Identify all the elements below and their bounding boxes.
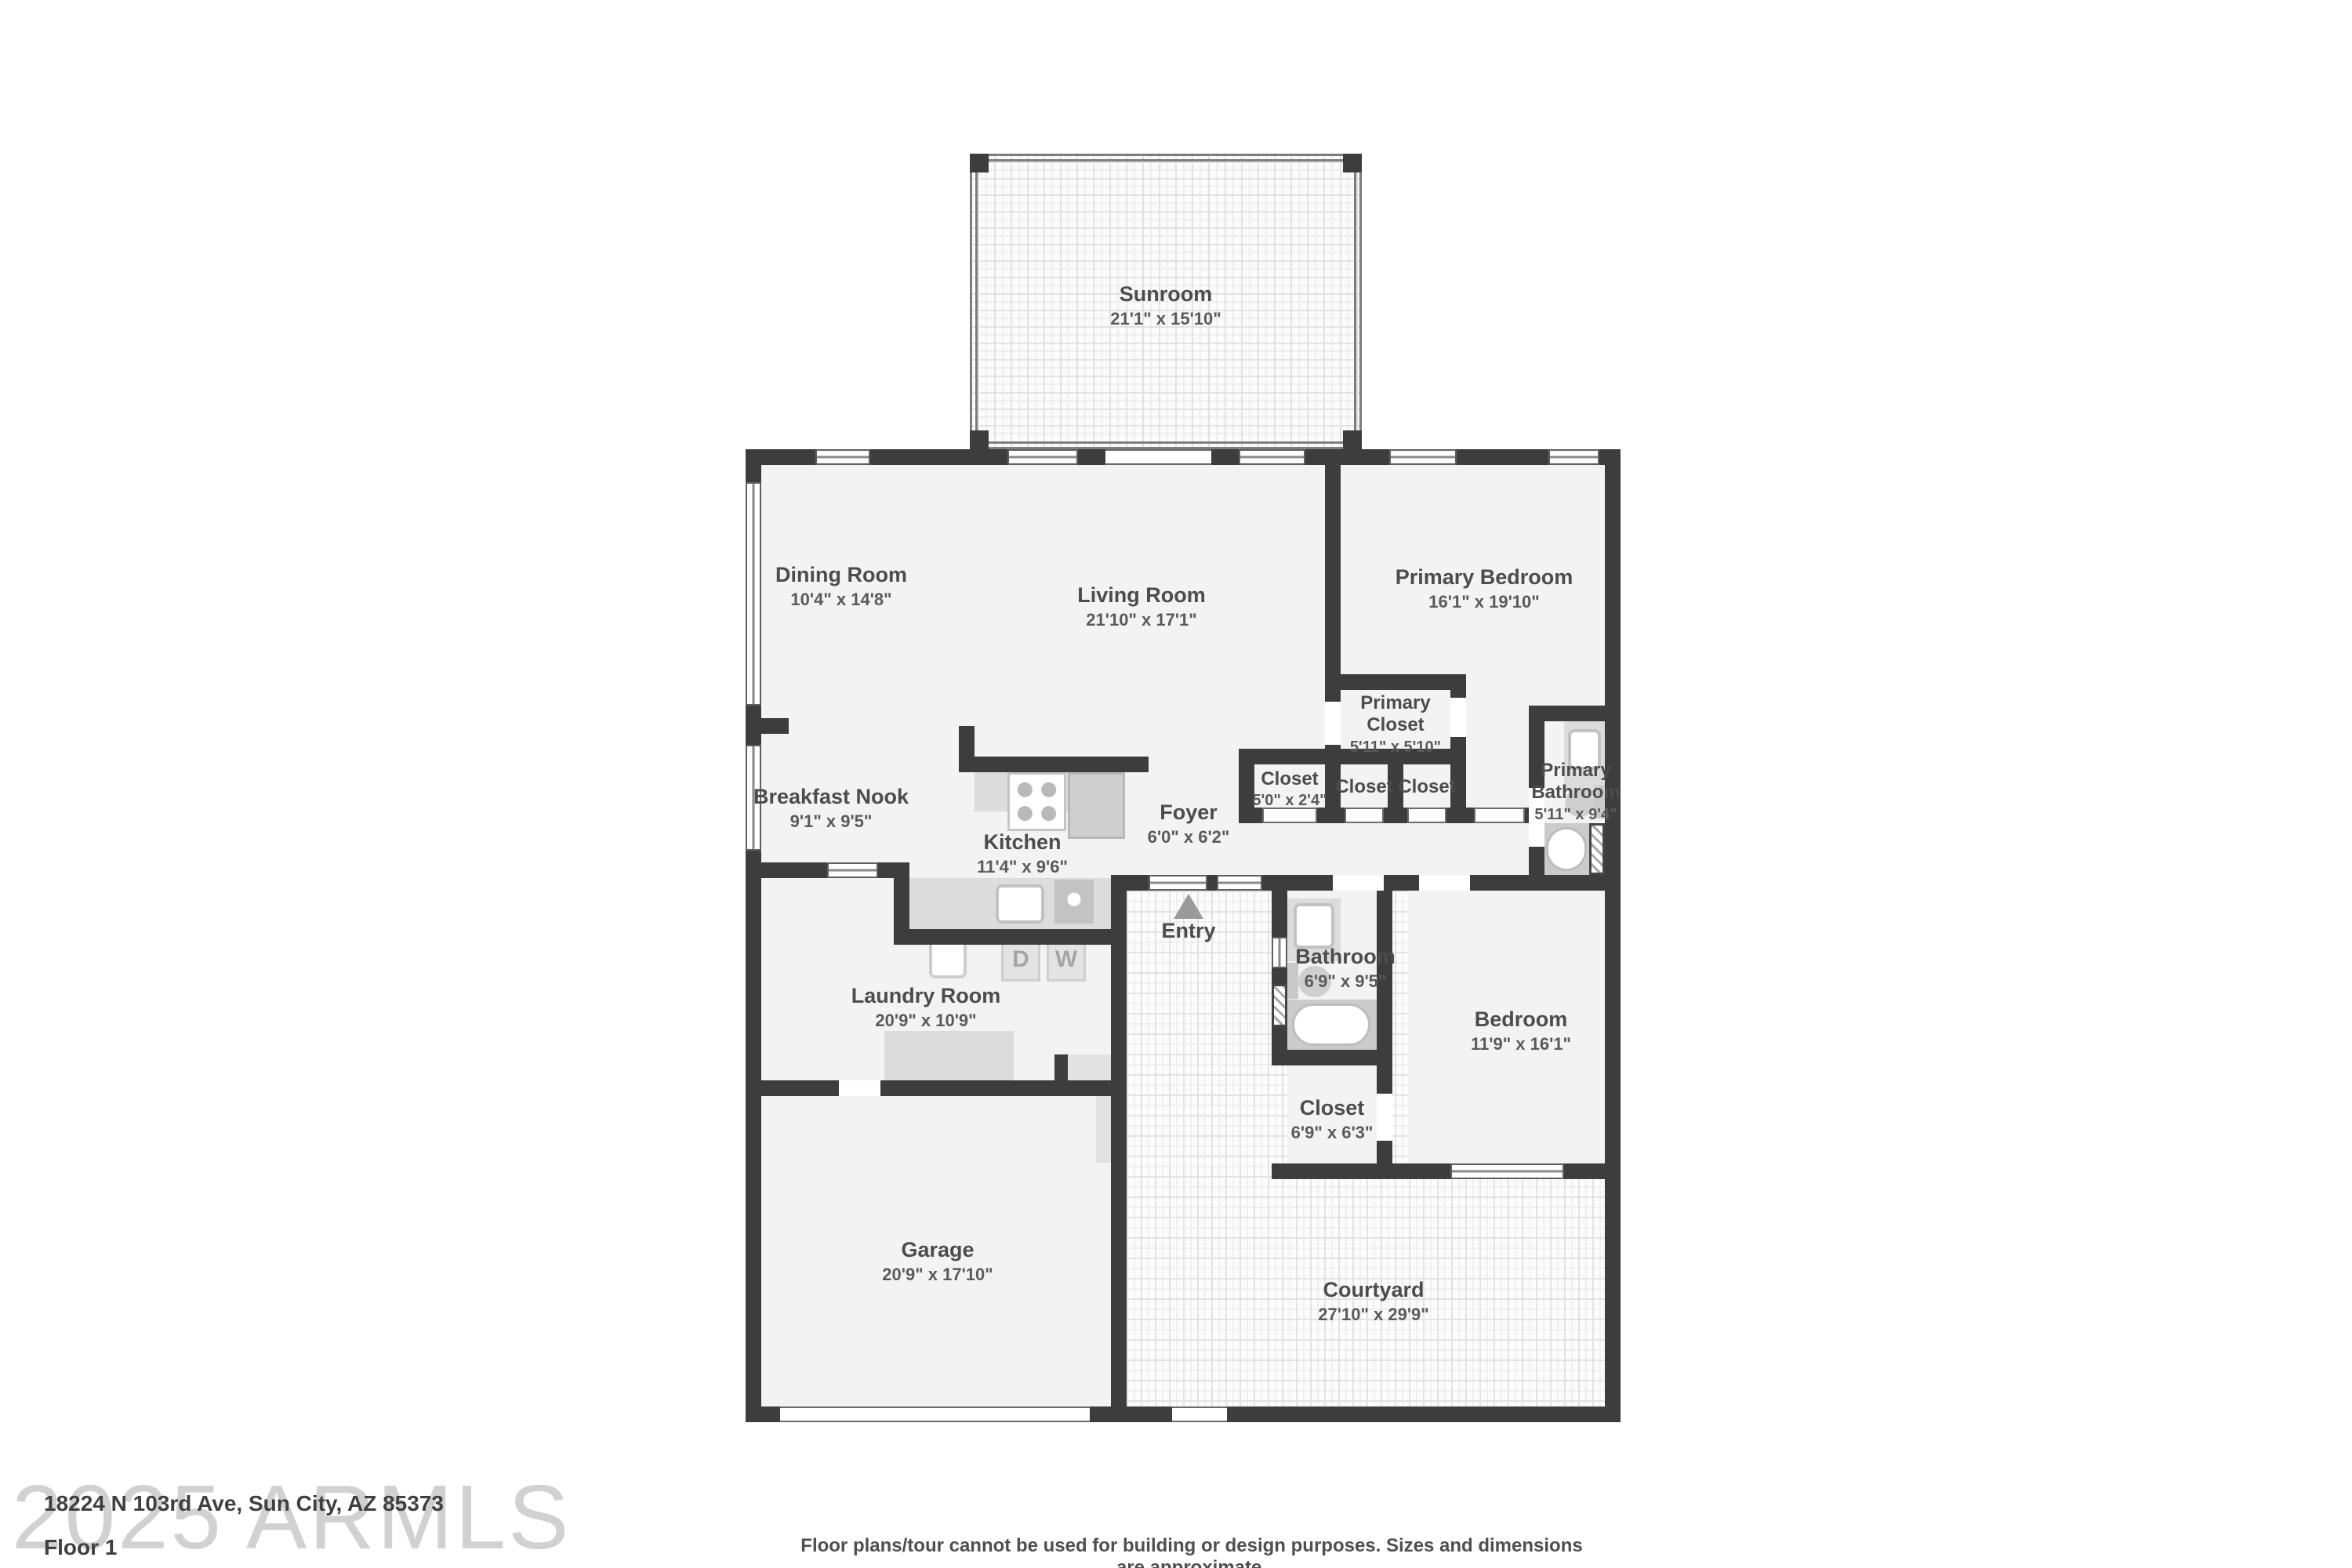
sunroom-corner xyxy=(1343,154,1362,172)
door-opening xyxy=(1345,808,1384,823)
door-opening xyxy=(1407,808,1446,823)
wall xyxy=(746,862,827,878)
wall xyxy=(1564,1163,1621,1179)
wall xyxy=(959,757,1149,772)
room-name: Closet xyxy=(1384,776,1470,798)
patio-door-opening xyxy=(1105,449,1211,465)
wall xyxy=(1272,1163,1450,1179)
room-name: Closet xyxy=(1254,1096,1410,1121)
sink-icon xyxy=(1294,903,1334,949)
room-label-foyer: Foyer6'0" x 6'2" xyxy=(1110,800,1267,848)
sunroom-corner xyxy=(970,430,989,449)
room-label-laundry-room: Laundry Room20'9" x 10'9" xyxy=(800,984,1051,1031)
wall xyxy=(1529,847,1544,875)
address-text: 18224 N 103rd Ave, Sun City, AZ 85373 xyxy=(44,1491,444,1516)
room-dimensions: 6'9" x 6'3" xyxy=(1254,1123,1410,1143)
wall xyxy=(1384,808,1407,823)
room-dimensions: 9'1" x 9'5" xyxy=(706,811,956,832)
room-dimensions: 20'9" x 17'10" xyxy=(820,1265,1055,1285)
room-dimensions: 21'10" x 17'1" xyxy=(1024,610,1259,630)
room-label-bedroom: Bedroom11'9" x 16'1" xyxy=(1403,1007,1639,1054)
wall xyxy=(746,1080,839,1096)
floor-plan: D W xyxy=(0,0,2352,1568)
room-name: Bedroom xyxy=(1403,1007,1639,1033)
room-label-closet-bedroom: Closet6'9" x 6'3" xyxy=(1254,1096,1410,1143)
room-name: Primary Closet xyxy=(1337,692,1454,737)
room-name: Sunroom xyxy=(1048,282,1283,307)
room-label-closet-b: Closet xyxy=(1384,776,1470,798)
window xyxy=(1007,449,1078,465)
wall xyxy=(1384,875,1419,891)
room-name: Dining Room xyxy=(724,563,959,588)
sink-icon xyxy=(996,884,1044,924)
shower-icon xyxy=(1589,823,1605,875)
window xyxy=(827,862,878,878)
wall xyxy=(1262,875,1333,891)
room-label-living-room: Living Room21'10" x 17'1" xyxy=(1024,583,1259,630)
bathtub-icon xyxy=(1292,1004,1370,1046)
room-dimensions: 6'0" x 6'2" xyxy=(1110,827,1267,848)
door-opening xyxy=(1419,875,1470,891)
wall xyxy=(1325,449,1341,702)
disposal-sink-icon xyxy=(1054,880,1094,924)
disclaimer-text: Floor plans/tour cannot be used for buil… xyxy=(784,1535,1599,1568)
room-dimensions: 5'11" x 5'10" xyxy=(1337,739,1454,757)
wall xyxy=(1207,875,1217,891)
wall xyxy=(1054,1054,1068,1096)
room-dimensions: 27'10" x 29'9" xyxy=(1256,1305,1491,1325)
dryer-label: D xyxy=(1012,946,1029,973)
wall xyxy=(1470,875,1621,891)
room-label-sunroom: Sunroom21'1" x 15'10" xyxy=(1048,282,1283,329)
garage-door-opening xyxy=(780,1406,1090,1422)
room-label-primary-bedroom: Primary Bedroom16'1" x 19'10" xyxy=(1351,565,1617,612)
door-opening xyxy=(839,1080,880,1096)
room-label-garage: Garage20'9" x 17'10" xyxy=(820,1238,1055,1285)
room-name: Kitchen xyxy=(905,830,1140,855)
room-name: Primary Bathroom xyxy=(1509,760,1642,804)
wall xyxy=(959,726,975,772)
room-name: Breakfast Nook xyxy=(706,785,956,810)
room-dimensions: 10'4" x 14'8" xyxy=(724,590,959,610)
wall xyxy=(1111,891,1127,1406)
room-label-bathroom: Bathroom6'9" x 9'5" xyxy=(1251,945,1439,992)
room-name: Bathroom xyxy=(1251,945,1439,970)
room-label-primary-bathroom: Primary Bathroom5'11" x 9'4" xyxy=(1509,760,1642,824)
window xyxy=(1389,449,1457,465)
wall xyxy=(1446,808,1474,823)
wall xyxy=(880,1080,1127,1096)
room-dimensions: 16'1" x 19'10" xyxy=(1351,592,1617,612)
room-name: Courtyard xyxy=(1256,1278,1491,1303)
wall xyxy=(1272,1050,1392,1065)
room-label-kitchen: Kitchen11'4" x 9'6" xyxy=(905,830,1140,877)
room-name: Laundry Room xyxy=(800,984,1051,1009)
room-name: Living Room xyxy=(1024,583,1259,608)
wall xyxy=(1377,891,1392,1094)
wall xyxy=(1325,674,1466,690)
room-name: Entry xyxy=(1110,919,1267,944)
window xyxy=(1239,449,1305,465)
courtyard-gate-opening xyxy=(1172,1406,1227,1422)
room-dimensions: 6'9" x 9'5" xyxy=(1251,971,1439,992)
bathtub-icon xyxy=(1546,827,1587,871)
counter xyxy=(884,1031,1014,1080)
room-label-entry: Entry xyxy=(1110,919,1267,944)
stove-icon xyxy=(1007,772,1066,831)
window xyxy=(1450,1163,1564,1179)
window xyxy=(815,449,870,465)
washer-label: W xyxy=(1055,946,1077,973)
wall xyxy=(746,718,789,734)
sunroom-corner xyxy=(1343,430,1362,449)
floor-label: Floor 1 xyxy=(44,1535,117,1560)
window xyxy=(1548,449,1599,465)
wall xyxy=(894,929,1127,945)
room-name: Foyer xyxy=(1110,800,1267,826)
room-dimensions: 5'11" x 9'4" xyxy=(1509,806,1642,825)
room-dimensions: 20'9" x 10'9" xyxy=(800,1011,1051,1031)
room-label-breakfast-nook: Breakfast Nook9'1" x 9'5" xyxy=(706,785,956,832)
room-name: Primary Bedroom xyxy=(1351,565,1617,590)
wall xyxy=(1272,891,1287,937)
room-name: Garage xyxy=(820,1238,1055,1263)
room-dimensions: 11'4" x 9'6" xyxy=(905,857,1140,877)
room-dimensions: 11'9" x 16'1" xyxy=(1403,1034,1639,1054)
door-opening xyxy=(1333,875,1384,891)
wall xyxy=(1111,875,1149,891)
window xyxy=(1217,875,1262,891)
window xyxy=(1149,875,1207,891)
sunroom-corner xyxy=(970,154,989,172)
room-dimensions: 21'1" x 15'10" xyxy=(1048,309,1283,329)
room-label-courtyard: Courtyard27'10" x 29'9" xyxy=(1256,1278,1491,1325)
room-label-dining-room: Dining Room10'4" x 14'8" xyxy=(724,563,959,610)
entry-arrow-icon xyxy=(1174,894,1203,919)
room-label-primary-closet: Primary Closet5'11" x 5'10" xyxy=(1337,692,1454,757)
